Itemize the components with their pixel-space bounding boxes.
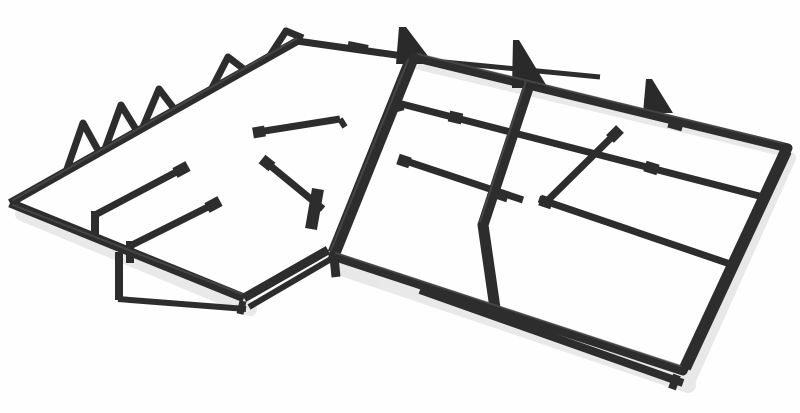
left-grate-south-foot bbox=[240, 301, 243, 314]
right-grate-inner-rail-mid-pad-1 bbox=[398, 159, 410, 163]
right-grate-inner-rail-a-pad-2 bbox=[645, 166, 658, 170]
product-image: Product photo: two black cast-iron gas h… bbox=[0, 0, 800, 413]
right-grate-diagonal-finger-pad bbox=[610, 129, 620, 139]
right-grate-front-left-foot bbox=[334, 257, 336, 277]
left-grate-finger-4-pad bbox=[262, 159, 272, 167]
left-grate-finger-2-pad bbox=[207, 201, 220, 208]
right-grate-left-rail-post bbox=[398, 99, 401, 111]
left-grate-finger-3-pad bbox=[253, 131, 265, 133]
left-grate-ne-bump bbox=[348, 44, 368, 48]
right-grate-inner-rail-a-pad-1 bbox=[449, 116, 462, 119]
product-photo-gas-hob-pan-supports: Product photo: two black cast-iron gas h… bbox=[0, 0, 800, 413]
left-grate-finger-1-pad bbox=[175, 166, 188, 173]
right-grate-inner-rail-mid-pad-2 bbox=[496, 193, 508, 197]
left-grate-cross-rail-stub bbox=[311, 189, 318, 229]
right-grate-front-right-foot bbox=[672, 375, 677, 389]
left-grate-finger-3-foot bbox=[340, 119, 345, 127]
